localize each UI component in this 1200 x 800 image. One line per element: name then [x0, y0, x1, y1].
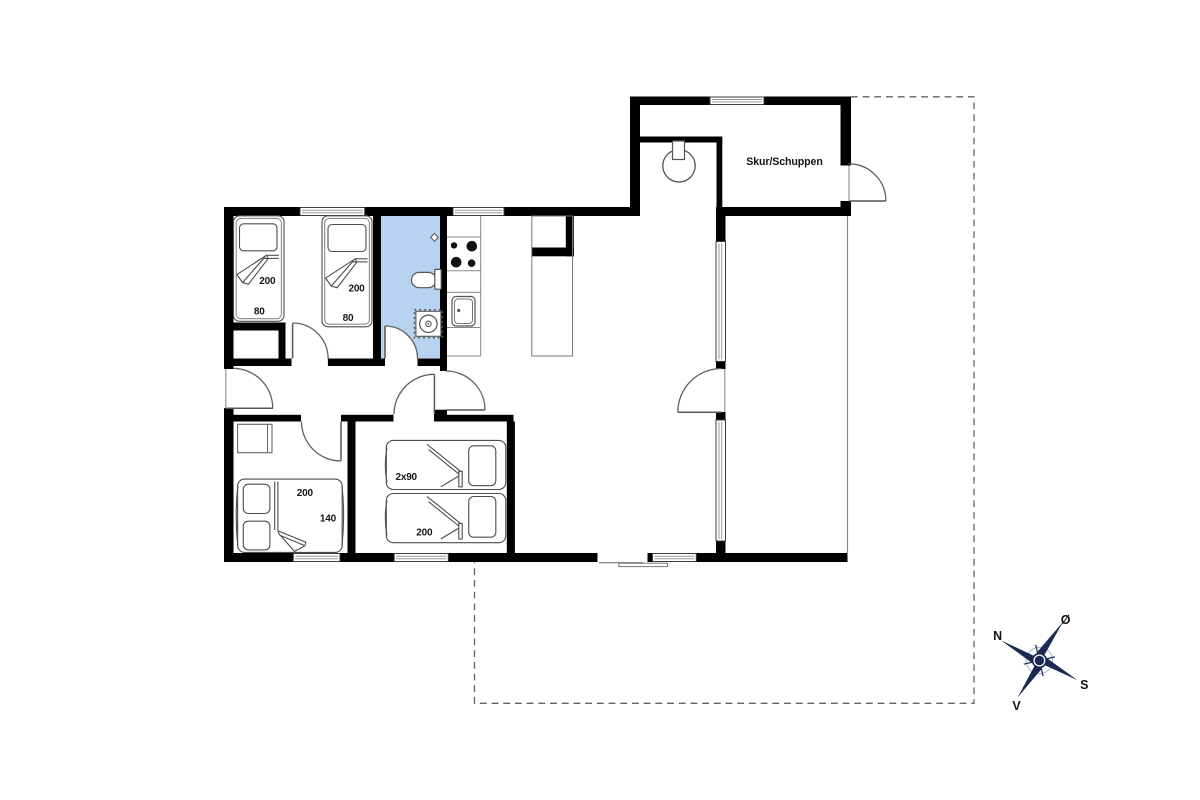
- svg-text:140: 140: [320, 514, 337, 525]
- svg-text:V: V: [1012, 699, 1021, 713]
- svg-text:200: 200: [297, 488, 314, 499]
- svg-text:200: 200: [348, 283, 365, 294]
- svg-text:2x90: 2x90: [395, 472, 417, 483]
- svg-text:Ø: Ø: [1061, 613, 1071, 627]
- svg-text:S: S: [1080, 678, 1088, 692]
- svg-text:80: 80: [254, 307, 265, 318]
- svg-text:Skur/Schuppen: Skur/Schuppen: [746, 156, 822, 168]
- svg-text:200: 200: [416, 527, 433, 538]
- svg-text:200: 200: [259, 276, 276, 287]
- svg-text:N: N: [993, 629, 1002, 643]
- svg-text:80: 80: [343, 313, 354, 324]
